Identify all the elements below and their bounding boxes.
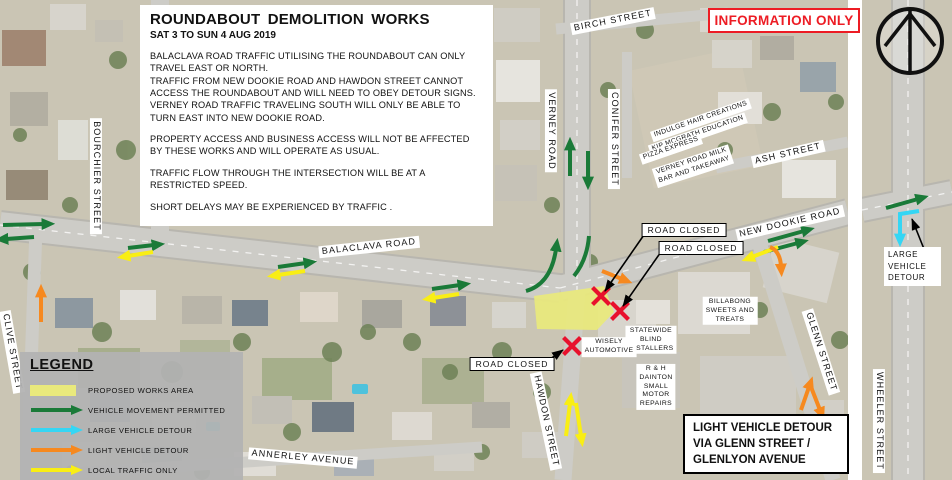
legend-item-local-traffic: LOCAL TRAFFIC ONLY — [30, 460, 233, 480]
information-only-banner: INFORMATION ONLY — [708, 8, 860, 33]
legend-item-label: LOCAL TRAFFIC ONLY — [88, 466, 178, 475]
notice-panel: ROUNDABOUT DEMOLITION WORKS SAT 3 TO SUN… — [140, 5, 493, 226]
notice-paragraph: SHORT DELAYS MAY BE EXPERIENCED BY TRAFF… — [150, 201, 483, 213]
legend-item-label: LARGE VEHICLE DETOUR — [88, 426, 192, 435]
legend-item-works-area: PROPOSED WORKS AREA — [30, 380, 233, 400]
legend-item-vehicle-movement: VEHICLE MOVEMENT PERMITTED — [30, 400, 233, 420]
north-compass-icon — [878, 9, 942, 73]
legend-item-large-detour: LARGE VEHICLE DETOUR — [30, 420, 233, 440]
legend-item-label: PROPOSED WORKS AREA — [88, 386, 194, 395]
business-label-wisely-automotive: WISELY AUTOMOTIVE — [582, 337, 637, 357]
notice-paragraph: BALACLAVA ROAD TRAFFIC UTILISING THE ROU… — [150, 50, 483, 124]
yellow-arrow-icon — [30, 464, 84, 476]
cyan-arrow-icon — [30, 424, 84, 436]
legend-box: LEGEND PROPOSED WORKS AREA VEHICLE MOVEM… — [20, 352, 243, 480]
page-title: ROUNDABOUT DEMOLITION WORKS — [150, 11, 483, 28]
information-only-label: INFORMATION ONLY — [714, 13, 853, 28]
notice-paragraph: PROPERTY ACCESS AND BUSINESS ACCESS WILL… — [150, 133, 483, 158]
roadworks-map-page: ROUNDABOUT DEMOLITION WORKS SAT 3 TO SUN… — [0, 0, 952, 480]
notice-paragraph: TRAFFIC FLOW THROUGH THE INTERSECTION WI… — [150, 167, 483, 192]
road-closed-callout-3: ROAD CLOSED — [470, 357, 555, 371]
map-strip-divider — [848, 0, 862, 480]
street-label-conifer: CONIFER STREET — [608, 89, 620, 189]
orange-arrow-icon — [30, 444, 84, 456]
legend-item-light-detour: LIGHT VEHICLE DETOUR — [30, 440, 233, 460]
light-vehicle-detour-box: LIGHT VEHICLE DETOUR VIA GLENN STREET / … — [683, 414, 849, 474]
legend-item-label: VEHICLE MOVEMENT PERMITTED — [88, 406, 225, 415]
works-area-swatch — [30, 385, 76, 396]
road-closed-callout-1: ROAD CLOSED — [642, 223, 727, 237]
street-label-wheeler: WHEELER STREET — [873, 369, 885, 473]
legend-title: LEGEND — [30, 357, 233, 373]
business-label-dainton-motor: R & H DAINTON SMALL MOTOR REPAIRS — [636, 364, 675, 410]
large-vehicle-detour-callout: LARGE VEHICLE DETOUR — [884, 247, 941, 286]
business-label-billabong: BILLABONG SWEETS AND TREATS — [703, 297, 758, 325]
street-label-verney: VERNEY ROAD — [545, 89, 557, 172]
legend-item-label: LIGHT VEHICLE DETOUR — [88, 446, 189, 455]
street-label-bourchier: BOURCHIER STREET — [90, 118, 102, 234]
road-closed-callout-2: ROAD CLOSED — [659, 241, 744, 255]
green-arrow-icon — [30, 404, 84, 416]
date-range: SAT 3 TO SUN 4 AUG 2019 — [150, 30, 483, 41]
